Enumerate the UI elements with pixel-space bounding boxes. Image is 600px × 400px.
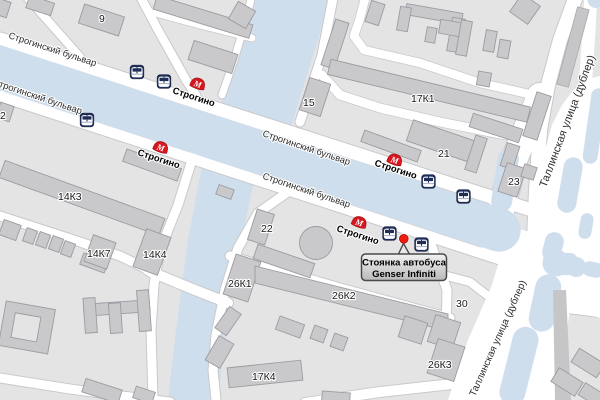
svg-text:9: 9 (99, 13, 105, 25)
svg-text:26К1: 26К1 (228, 278, 252, 290)
svg-text:2: 2 (0, 110, 6, 122)
svg-text:26К2: 26К2 (332, 290, 356, 302)
svg-text:30: 30 (456, 298, 468, 310)
svg-text:14К7: 14К7 (87, 248, 111, 260)
svg-text:15: 15 (303, 97, 315, 109)
svg-text:Genser Infiniti: Genser Infiniti (372, 269, 436, 280)
svg-text:14К3: 14К3 (58, 191, 82, 203)
svg-text:21: 21 (438, 148, 450, 160)
svg-text:14К4: 14К4 (143, 249, 167, 261)
svg-text:17К4: 17К4 (252, 371, 276, 383)
svg-text:Стоянка автобуса: Стоянка автобуса (362, 258, 447, 269)
svg-text:22: 22 (261, 223, 273, 235)
svg-text:17К1: 17К1 (411, 93, 435, 105)
svg-text:26К3: 26К3 (428, 359, 452, 371)
svg-text:23: 23 (508, 176, 520, 188)
